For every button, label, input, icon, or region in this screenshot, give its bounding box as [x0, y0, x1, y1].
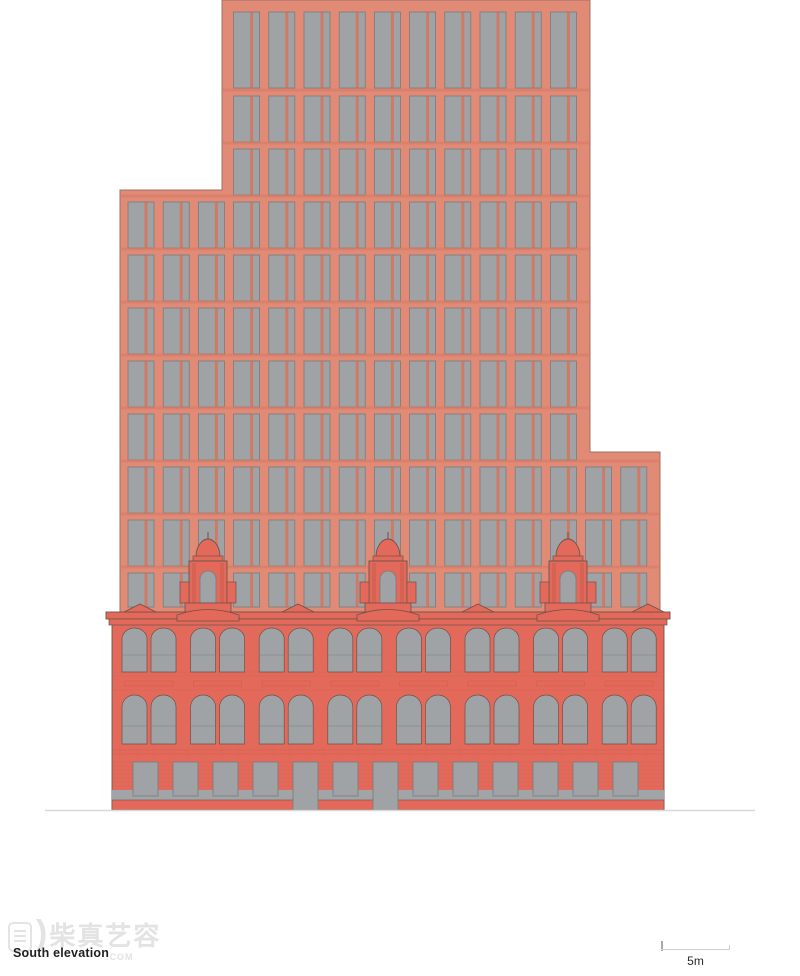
ground-window — [533, 762, 558, 796]
window-mullion — [532, 415, 535, 460]
window-mullion — [321, 362, 324, 407]
tower-window — [480, 308, 506, 354]
tower-window — [374, 467, 400, 513]
tower-window — [410, 467, 436, 513]
tower-window — [234, 520, 260, 566]
window-mullion — [321, 574, 324, 607]
window-mullion — [215, 203, 218, 248]
turret-pilaster — [372, 563, 376, 603]
window-mullion — [461, 13, 464, 88]
window-mullion — [321, 13, 324, 88]
window-mullion — [567, 309, 570, 354]
tower-window — [234, 573, 260, 607]
tower-window — [128, 520, 154, 566]
tower-window — [550, 467, 576, 513]
tower-window — [480, 414, 506, 460]
tower-window — [374, 308, 400, 354]
window-mullion — [250, 203, 253, 248]
window-mullion — [532, 150, 535, 195]
floor-band — [120, 142, 660, 145]
window-mullion — [250, 521, 253, 566]
arched-window — [602, 695, 627, 744]
window-mullion — [497, 415, 500, 460]
arched-window — [288, 628, 313, 672]
tower-window — [515, 96, 541, 142]
turret-pilaster — [192, 563, 196, 603]
window-mullion — [426, 309, 429, 354]
tower-window — [163, 308, 189, 354]
window-mullion — [461, 150, 464, 195]
tower-window — [374, 12, 400, 88]
tower-window — [234, 467, 260, 513]
tower-window — [410, 12, 436, 88]
tower-window — [304, 467, 330, 513]
window-mullion — [602, 468, 605, 513]
window-mullion — [356, 13, 359, 88]
tower-window — [234, 96, 260, 142]
window-mullion — [180, 468, 183, 513]
tower-window — [269, 414, 295, 460]
turret-wing — [227, 582, 236, 603]
window-mullion — [426, 574, 429, 607]
turret-pilaster — [400, 563, 404, 603]
window-mullion — [391, 468, 394, 513]
tower-window — [515, 149, 541, 195]
window-mullion — [285, 256, 288, 301]
window-mullion — [285, 574, 288, 607]
tower-window — [445, 361, 471, 407]
floor-band — [120, 460, 660, 463]
window-mullion — [391, 256, 394, 301]
window-mullion — [567, 415, 570, 460]
arched-window — [259, 628, 284, 672]
window-mullion — [567, 97, 570, 142]
window-mullion — [391, 415, 394, 460]
tower-window — [198, 255, 224, 301]
turret-opening — [380, 571, 396, 603]
tower-window — [515, 573, 541, 607]
tower-window — [445, 12, 471, 88]
arched-window — [357, 695, 382, 744]
window-mullion — [461, 309, 464, 354]
tower-window — [515, 520, 541, 566]
window-mullion — [497, 362, 500, 407]
window-mullion — [215, 468, 218, 513]
tower-window — [480, 202, 506, 248]
tower-window — [269, 361, 295, 407]
ground-door — [373, 762, 398, 810]
tower-window — [445, 202, 471, 248]
tower-window — [550, 96, 576, 142]
window-mullion — [215, 256, 218, 301]
tower-window — [480, 149, 506, 195]
tower-window — [480, 467, 506, 513]
tower-window — [339, 255, 365, 301]
turret-pilaster — [580, 563, 584, 603]
tower-window — [550, 308, 576, 354]
window-mullion — [356, 150, 359, 195]
tower-window — [410, 414, 436, 460]
arched-window — [357, 628, 382, 672]
window-mullion — [532, 468, 535, 513]
ground-window — [213, 762, 238, 796]
window-mullion — [145, 203, 148, 248]
tower-window — [410, 308, 436, 354]
window-mullion — [285, 97, 288, 142]
window-mullion — [285, 468, 288, 513]
window-mullion — [180, 256, 183, 301]
window-mullion — [426, 13, 429, 88]
window-mullion — [497, 521, 500, 566]
window-mullion — [321, 203, 324, 248]
tower-window — [480, 520, 506, 566]
window-mullion — [426, 415, 429, 460]
tower-window — [515, 255, 541, 301]
arched-window — [122, 695, 147, 744]
turret-wing — [407, 582, 416, 603]
arched-window — [563, 695, 588, 744]
tower-window — [128, 414, 154, 460]
tower-window — [339, 361, 365, 407]
tower-window — [234, 149, 260, 195]
window-mullion — [145, 574, 148, 607]
tower-window — [304, 12, 330, 88]
ground-window — [413, 762, 438, 796]
tower-window — [445, 520, 471, 566]
window-mullion — [215, 362, 218, 407]
window-mullion — [637, 574, 640, 607]
scale-bar-label: 5m — [661, 954, 730, 968]
window-mullion — [426, 468, 429, 513]
scale-bar-line — [661, 949, 730, 950]
ground-window — [453, 762, 478, 796]
window-mullion — [250, 309, 253, 354]
arched-window — [220, 695, 245, 744]
turret-wing — [540, 582, 549, 603]
ground-window — [613, 762, 638, 796]
tower-window — [234, 12, 260, 88]
window-mullion — [461, 415, 464, 460]
window-mullion — [250, 468, 253, 513]
arched-window — [465, 628, 490, 672]
tower-window — [410, 202, 436, 248]
window-mullion — [285, 362, 288, 407]
window-mullion — [532, 521, 535, 566]
tower-window — [339, 149, 365, 195]
tower-window — [269, 255, 295, 301]
window-mullion — [180, 309, 183, 354]
window-mullion — [391, 13, 394, 88]
tower-window — [550, 414, 576, 460]
tower-window — [480, 255, 506, 301]
tower-window — [621, 573, 647, 607]
tower-window — [480, 361, 506, 407]
tower-window — [304, 96, 330, 142]
window-mullion — [461, 203, 464, 248]
arched-window — [631, 695, 656, 744]
tower-window — [304, 520, 330, 566]
window-mullion — [461, 256, 464, 301]
tower-window — [269, 573, 295, 607]
tower-window — [374, 361, 400, 407]
turret-collar — [373, 556, 403, 561]
tower-window — [515, 361, 541, 407]
tower-window — [198, 361, 224, 407]
window-mullion — [321, 415, 324, 460]
window-mullion — [145, 521, 148, 566]
tower-window — [621, 467, 647, 513]
window-mullion — [497, 203, 500, 248]
arched-window — [328, 695, 353, 744]
window-mullion — [567, 362, 570, 407]
window-mullion — [321, 256, 324, 301]
window-mullion — [285, 415, 288, 460]
tower-window — [515, 414, 541, 460]
window-mullion — [180, 521, 183, 566]
floor-band — [120, 301, 660, 304]
tower-window — [339, 414, 365, 460]
tower-window — [304, 149, 330, 195]
turret-wing — [587, 582, 596, 603]
turret-wing — [180, 582, 189, 603]
window-mullion — [391, 203, 394, 248]
tower-window — [163, 255, 189, 301]
window-mullion — [321, 309, 324, 354]
window-mullion — [426, 150, 429, 195]
tower-window — [480, 12, 506, 88]
floor-band — [120, 195, 660, 198]
tower-window — [550, 12, 576, 88]
window-mullion — [356, 574, 359, 607]
tower-window — [304, 361, 330, 407]
tower-window — [304, 573, 330, 607]
tower-window — [128, 308, 154, 354]
window-mullion — [145, 362, 148, 407]
arched-window — [191, 695, 216, 744]
arched-window — [191, 628, 216, 672]
tower-window — [198, 467, 224, 513]
arched-window — [631, 628, 656, 672]
tower-window — [198, 414, 224, 460]
window-mullion — [532, 203, 535, 248]
window-mullion — [250, 13, 253, 88]
window-mullion — [426, 203, 429, 248]
tower-window — [374, 149, 400, 195]
tower-window — [410, 96, 436, 142]
window-mullion — [250, 256, 253, 301]
turret-collar — [193, 556, 223, 561]
tower-window — [163, 467, 189, 513]
ground-door — [293, 762, 318, 810]
ground-window — [573, 762, 598, 796]
window-mullion — [145, 468, 148, 513]
arched-window — [288, 695, 313, 744]
window-mullion — [180, 203, 183, 248]
tower-window — [410, 149, 436, 195]
tower-window — [586, 520, 612, 566]
window-mullion — [356, 97, 359, 142]
tower-window — [621, 520, 647, 566]
arched-window — [220, 628, 245, 672]
tower-window — [269, 12, 295, 88]
turret-pilaster — [220, 563, 224, 603]
tower-window — [304, 414, 330, 460]
tower-window — [339, 202, 365, 248]
window-mullion — [285, 150, 288, 195]
arched-window — [494, 695, 519, 744]
window-mullion — [567, 468, 570, 513]
tower-window — [234, 255, 260, 301]
tower-window — [128, 573, 154, 607]
arched-window — [122, 628, 147, 672]
arched-window — [151, 628, 176, 672]
tower-window — [269, 96, 295, 142]
arched-window — [534, 628, 559, 672]
window-mullion — [602, 574, 605, 607]
tower-window — [550, 255, 576, 301]
window-mullion — [461, 574, 464, 607]
window-mullion — [321, 468, 324, 513]
tower-window — [374, 414, 400, 460]
tower-window — [445, 308, 471, 354]
arched-window — [328, 628, 353, 672]
window-mullion — [145, 415, 148, 460]
window-mullion — [532, 309, 535, 354]
window-mullion — [356, 203, 359, 248]
window-mullion — [497, 468, 500, 513]
window-mullion — [250, 97, 253, 142]
tower-window — [515, 202, 541, 248]
tower-window — [128, 361, 154, 407]
window-mullion — [285, 521, 288, 566]
ground-window — [253, 762, 278, 796]
tower-window — [374, 202, 400, 248]
tower-window — [515, 12, 541, 88]
scale-bar-tick-right — [729, 945, 730, 950]
tower-window — [304, 308, 330, 354]
tower-window — [128, 255, 154, 301]
arched-window — [534, 695, 559, 744]
floor-band — [120, 89, 660, 92]
window-mullion — [532, 13, 535, 88]
arched-window — [425, 628, 450, 672]
window-mullion — [532, 362, 535, 407]
tower-window — [163, 361, 189, 407]
tower-window — [410, 361, 436, 407]
window-mullion — [180, 362, 183, 407]
tower-window — [163, 520, 189, 566]
tower-window — [339, 520, 365, 566]
tower-window — [445, 255, 471, 301]
window-mullion — [497, 256, 500, 301]
window-mullion — [356, 362, 359, 407]
tower-window — [550, 149, 576, 195]
tower-window — [128, 467, 154, 513]
turret-opening — [200, 571, 216, 603]
tower-window — [480, 96, 506, 142]
elevation-drawing — [0, 0, 800, 976]
tower-window — [339, 308, 365, 354]
tower-window — [480, 573, 506, 607]
window-mullion — [391, 150, 394, 195]
turret-wing — [360, 582, 369, 603]
turret-collar — [553, 556, 583, 561]
tower-window — [269, 467, 295, 513]
tower-window — [339, 12, 365, 88]
tower-window — [445, 467, 471, 513]
window-mullion — [532, 574, 535, 607]
window-mullion — [145, 309, 148, 354]
window-mullion — [285, 13, 288, 88]
window-mullion — [391, 309, 394, 354]
window-mullion — [637, 468, 640, 513]
tower-window — [445, 149, 471, 195]
window-mullion — [180, 415, 183, 460]
tower-window — [269, 149, 295, 195]
window-mullion — [285, 309, 288, 354]
window-mullion — [145, 256, 148, 301]
window-mullion — [567, 150, 570, 195]
window-mullion — [215, 309, 218, 354]
tower-window — [269, 520, 295, 566]
tower-window — [339, 467, 365, 513]
window-mullion — [285, 203, 288, 248]
arched-window — [259, 695, 284, 744]
tower-window — [269, 308, 295, 354]
window-mullion — [215, 415, 218, 460]
tower-window — [234, 414, 260, 460]
tower-window — [374, 96, 400, 142]
tower-window — [410, 520, 436, 566]
window-mullion — [391, 362, 394, 407]
arched-window — [494, 628, 519, 672]
window-mullion — [250, 415, 253, 460]
tower-window — [234, 308, 260, 354]
window-mullion — [426, 97, 429, 142]
tower-window — [198, 202, 224, 248]
window-mullion — [356, 521, 359, 566]
window-mullion — [497, 150, 500, 195]
tower-window — [550, 361, 576, 407]
window-mullion — [356, 256, 359, 301]
window-mullion — [532, 97, 535, 142]
ground-window — [493, 762, 518, 796]
window-mullion — [321, 150, 324, 195]
window-mullion — [391, 97, 394, 142]
tower-window — [550, 202, 576, 248]
tower-window — [304, 255, 330, 301]
ground-window — [333, 762, 358, 796]
window-mullion — [426, 256, 429, 301]
window-mullion — [356, 415, 359, 460]
window-mullion — [250, 362, 253, 407]
window-mullion — [567, 256, 570, 301]
floor-band — [120, 248, 660, 251]
window-mullion — [497, 574, 500, 607]
floor-band — [120, 354, 660, 357]
window-mullion — [356, 309, 359, 354]
window-mullion — [250, 574, 253, 607]
window-mullion — [567, 13, 570, 88]
window-mullion — [426, 521, 429, 566]
tower-window — [304, 202, 330, 248]
arched-window — [563, 628, 588, 672]
floor-band — [120, 513, 660, 516]
tower-window — [515, 467, 541, 513]
turret-pilaster — [552, 563, 556, 603]
window-mullion — [321, 97, 324, 142]
window-mullion — [497, 97, 500, 142]
